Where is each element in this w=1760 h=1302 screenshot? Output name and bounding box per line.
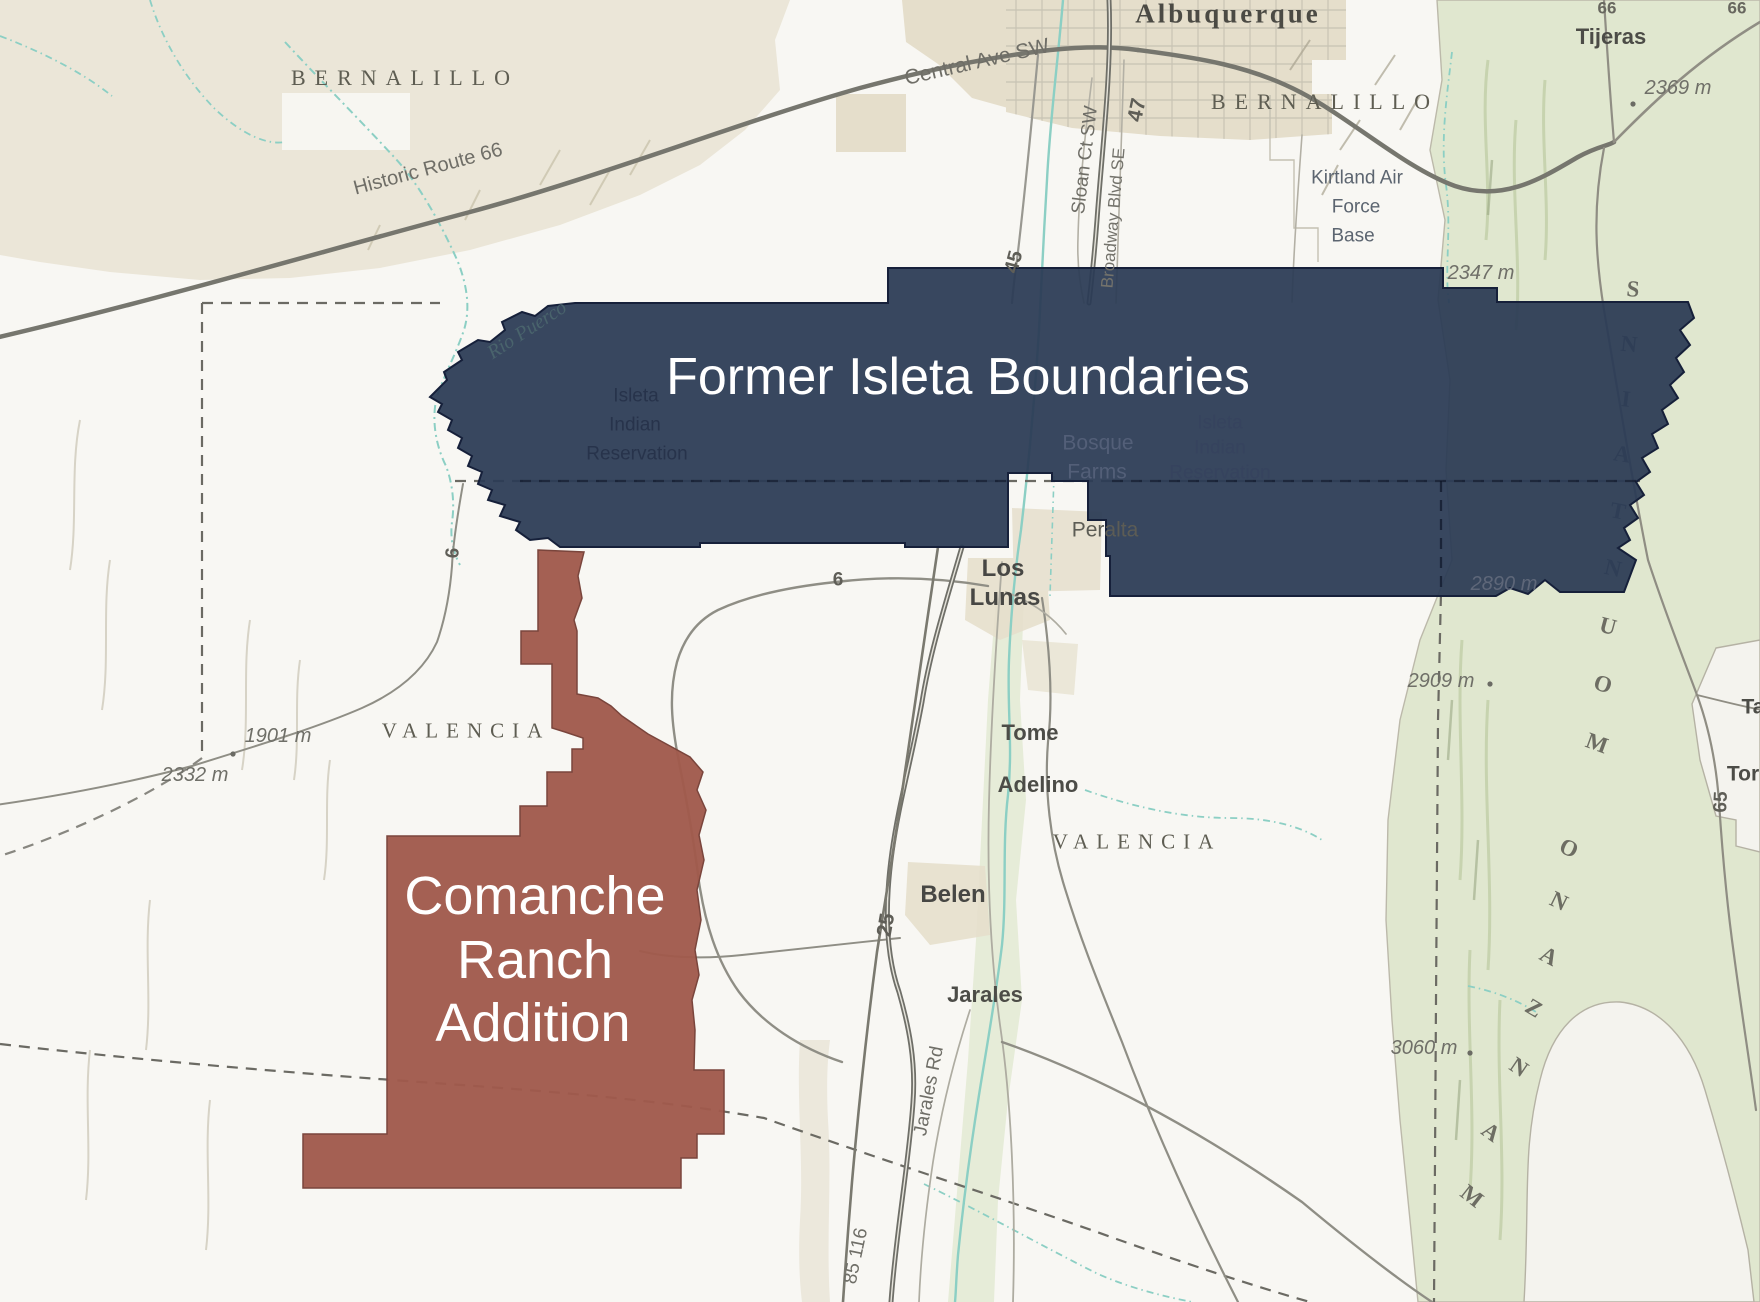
town-los-lunas-line1: Los	[982, 557, 1025, 581]
town-ta-clipped: Ta	[1742, 697, 1760, 718]
overlay-title-comanche-line1: Comanche	[404, 869, 665, 923]
road-jarales-rd: Jarales Rd	[911, 1045, 947, 1138]
route-45: 45	[1001, 249, 1026, 276]
elev-2369: 2369 m	[1645, 78, 1712, 98]
route-6-west: 6	[833, 571, 844, 590]
elev-2332: 2332 m	[162, 765, 229, 785]
town-bosque-farms-line2: Farms	[1067, 462, 1127, 483]
map-labels: AlbuquerqueBERNALILLOBERNALILLOTijeras23…	[0, 0, 1760, 1302]
route-66-corner: 66	[1728, 0, 1747, 17]
elev-2347: 2347 m	[1448, 263, 1515, 283]
reservation-east-line3: Reservation	[1169, 464, 1270, 483]
town-belen: Belen	[920, 883, 985, 907]
town-peralta: Peralta	[1072, 520, 1139, 541]
elev-1901: 1901 m	[245, 726, 312, 746]
kirtland-line2: Force	[1332, 198, 1381, 217]
elev-3060: 3060 m	[1391, 1038, 1458, 1058]
route-65: 65	[1711, 791, 1731, 813]
road-historic-route-66: Historic Route 66	[351, 139, 504, 198]
reservation-west-line1: Isleta	[613, 387, 658, 406]
elev-2909: 2909 m	[1408, 671, 1475, 691]
town-los-lunas-line2: Lunas	[970, 586, 1041, 610]
reservation-east-line1: Isleta	[1197, 414, 1242, 433]
road-sloan-ct: Sloan Ct SW	[1069, 105, 1101, 215]
route-25: 25	[874, 912, 899, 939]
route-66-north: 66	[1598, 0, 1617, 17]
county-bernalillo-nw: BERNALILLO	[291, 67, 519, 89]
elev-2890: 2890 m	[1471, 574, 1538, 594]
town-jarales: Jarales	[947, 984, 1023, 1006]
route-6-left: 6	[443, 547, 463, 559]
town-tor-clipped: Tor	[1727, 764, 1759, 785]
map-canvas[interactable]: MANZANOMOUNTAINS AlbuquerqueBERNALILLOBE…	[0, 0, 1760, 1302]
overlay-title-former-isleta: Former Isleta Boundaries	[666, 351, 1250, 403]
reservation-west-line3: Reservation	[586, 445, 687, 464]
road-central-ave: Central Ave SW	[903, 35, 1052, 89]
reservation-west-line2: Indian	[609, 416, 661, 435]
town-adelino: Adelino	[998, 774, 1079, 796]
overlay-title-comanche-line2: Ranch	[457, 933, 613, 987]
county-bernalillo-ne: BERNALILLO	[1211, 91, 1439, 113]
overlay-title-comanche-line3: Addition	[435, 996, 630, 1050]
reservation-east-line2: Indian	[1194, 439, 1246, 458]
kirtland-line3: Base	[1331, 227, 1374, 246]
route-47: 47	[1124, 96, 1149, 123]
county-valencia-west: VALENCIA	[382, 721, 551, 742]
town-tome: Tome	[1001, 722, 1058, 744]
route-85-116: 85 116	[841, 1226, 871, 1285]
road-broadway-blvd: Broadway Blvd SE	[1098, 147, 1127, 289]
county-valencia-east: VALENCIA	[1053, 832, 1222, 853]
kirtland-line1: Kirtland Air	[1311, 169, 1403, 188]
river-rio-puerco: Rio Puerco	[484, 297, 570, 363]
town-bosque-farms-line1: Bosque	[1062, 433, 1133, 454]
city-albuquerque: Albuquerque	[1135, 1, 1321, 28]
town-tijeras: Tijeras	[1576, 26, 1647, 48]
